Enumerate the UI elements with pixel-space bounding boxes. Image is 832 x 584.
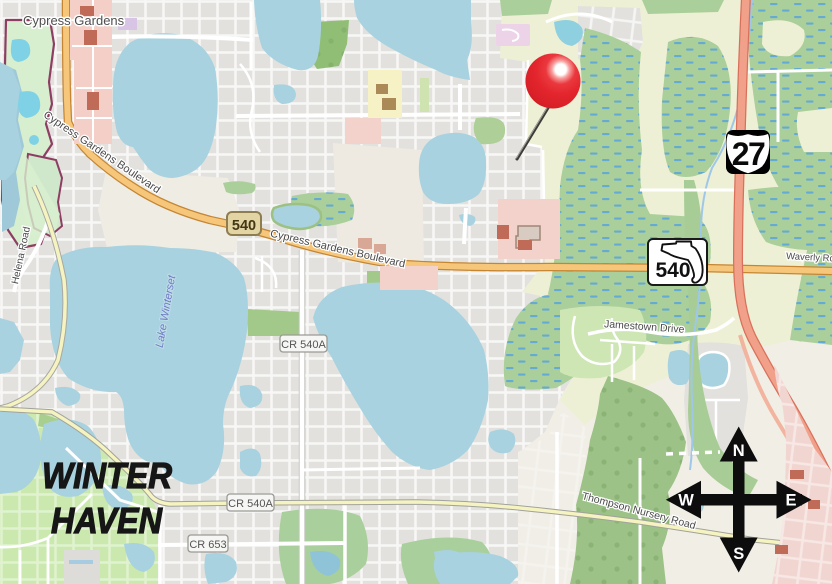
svg-text:CR 540A: CR 540A (281, 339, 326, 351)
svg-text:N: N (733, 442, 745, 460)
svg-text:WINTER: WINTER (42, 455, 172, 496)
svg-text:W: W (678, 492, 694, 510)
svg-text:Cypress Gardens: Cypress Gardens (23, 13, 125, 28)
svg-text:540: 540 (232, 218, 256, 234)
svg-text:CR 540A: CR 540A (228, 498, 273, 510)
svg-text:E: E (785, 492, 796, 510)
svg-text:540: 540 (655, 259, 690, 282)
svg-text:S: S (733, 545, 744, 563)
svg-text:27: 27 (732, 136, 765, 172)
svg-text:CR 653: CR 653 (189, 539, 226, 551)
svg-text:HAVEN: HAVEN (51, 500, 163, 541)
